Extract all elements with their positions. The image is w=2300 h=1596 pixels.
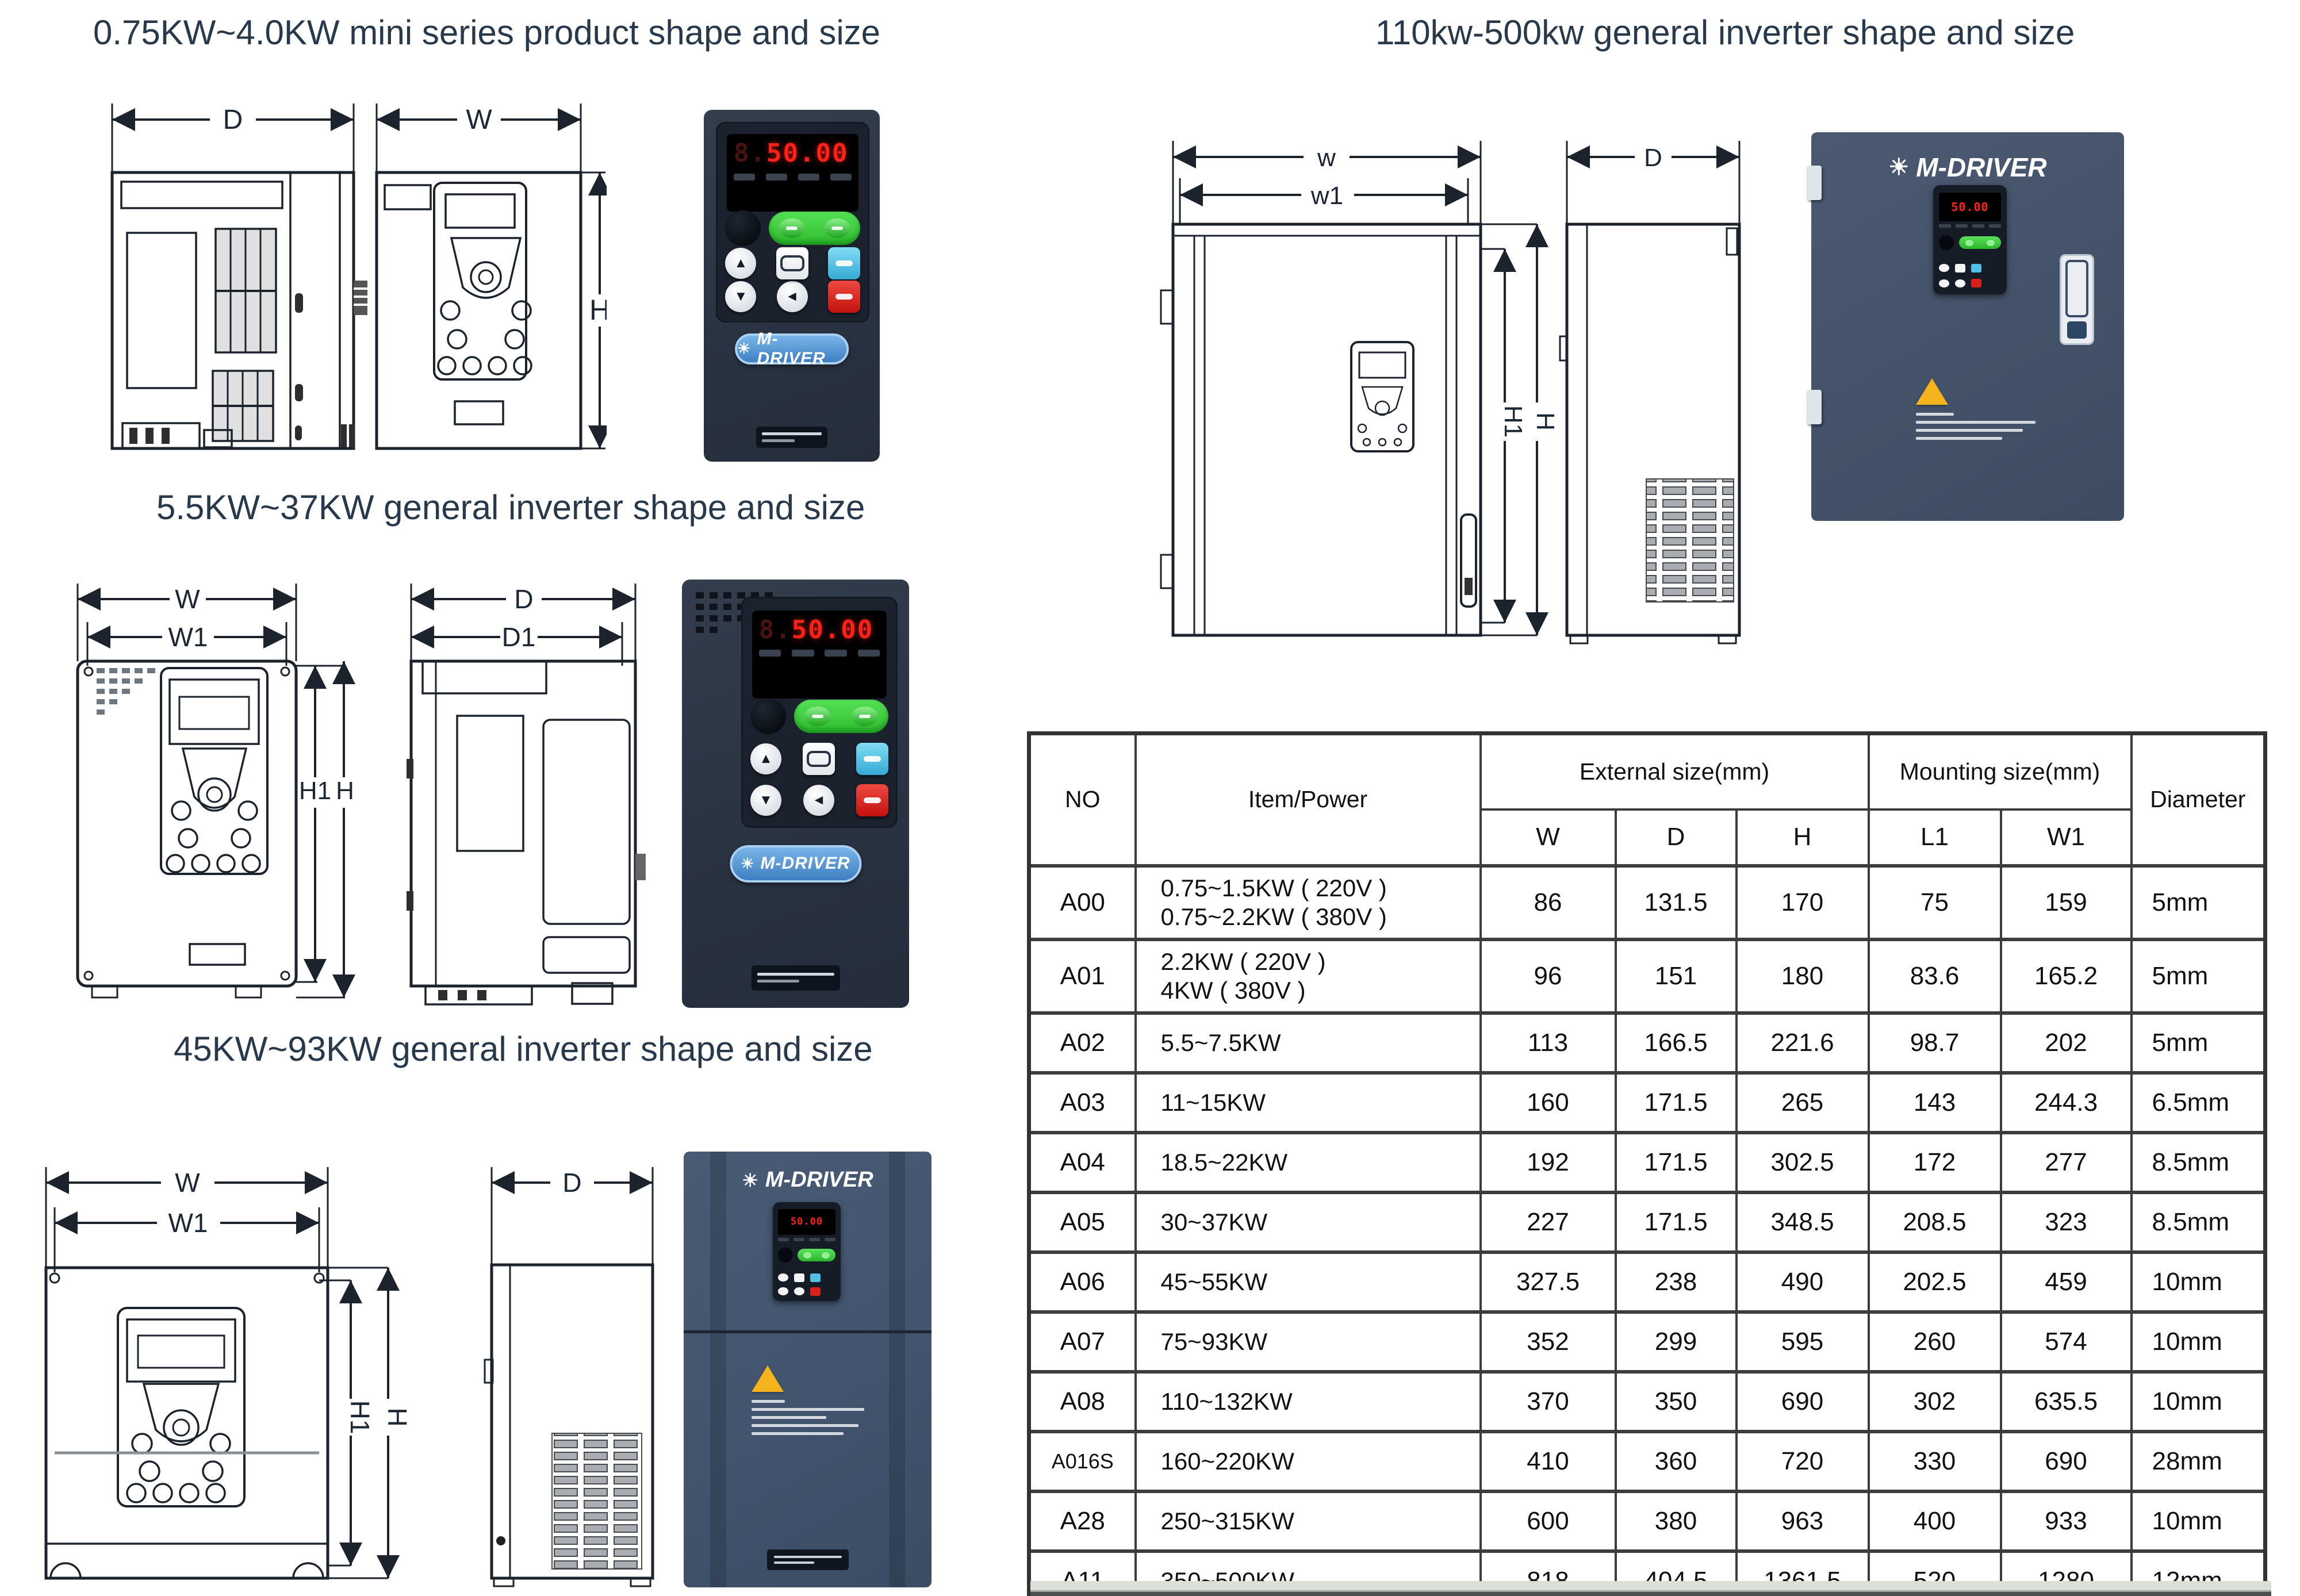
table-row: A016S160~220KW41036072033069028mm [1029,1432,2265,1491]
display-value: 50.00 [1951,200,1988,214]
table-cell: 8.5mm [2132,1133,2265,1192]
table-cell: 299 [1616,1312,1736,1372]
shift-button[interactable] [1971,264,1981,273]
brand-name: M-DRIVER [1916,152,2046,183]
table-cell: 238 [1616,1252,1736,1312]
brand-name: M-DRIVER [757,329,846,369]
table-cell: 180 [1736,939,1869,1013]
potentiometer-knob[interactable] [1939,235,1954,250]
dim-label-d: D [1644,144,1662,172]
product-photo-big-cabinet: ☀M-DRIVER 50.00 [1811,132,2124,521]
table-cell: 10mm [2132,1252,2265,1312]
keypad-outline [434,183,531,379]
table-cell: A00 [1029,866,1136,939]
table-cell: 244.3 [2001,1073,2132,1133]
table-cell: A08 [1029,1372,1136,1432]
table-cell: 635.5 [2001,1372,2132,1432]
up-button[interactable] [778,1273,788,1282]
vent-dots [97,668,155,715]
down-button[interactable]: ▼ [725,281,756,312]
table-cell: 227 [1481,1192,1616,1252]
col-header-h: H [1736,809,1869,866]
table-cell: 11~15KW [1136,1073,1481,1133]
stop-button[interactable] [810,1287,821,1296]
dim-label-d: D [223,105,243,135]
door-hinge [1807,166,1822,200]
enter-button[interactable] [1955,264,1965,273]
rating-label [767,1549,849,1570]
potentiometer-knob[interactable] [725,210,761,246]
display-ghost: 8. [759,615,792,644]
up-button[interactable] [1939,264,1949,272]
table-cell: 400 [1869,1491,2001,1551]
dim-label-d: D [562,1168,581,1198]
door-hinge [1807,390,1822,424]
stop-button[interactable] [1971,279,1981,287]
shift-button[interactable] [810,1273,821,1282]
keypad-panel: 8.50.00 ▲ ▼ ◄ [716,122,869,323]
dim-label-w: W [175,584,200,614]
up-arrow-icon: ▲ [734,255,747,271]
table-cell: 490 [1736,1252,1869,1312]
jog-button[interactable] [852,707,878,726]
table-cell: 5.5~7.5KW [1136,1013,1481,1073]
table-cell: 323 [2001,1192,2132,1252]
table-cell: 202 [2001,1013,2132,1073]
drawing-large-series: W W1 [14,1112,676,1590]
table-row: A08110~132KW370350690302635.510mm [1029,1372,2265,1432]
dim-label-w: W [466,105,492,135]
brand-name: M-DRIVER [765,1168,873,1192]
table-cell: A02 [1029,1013,1136,1073]
table-row: A0530~37KW227171.5348.5208.53238.5mm [1029,1192,2265,1252]
table-cell: 10mm [2132,1372,2265,1432]
table-cell: 327.5 [1481,1252,1616,1312]
table-cell: 75~93KW [1136,1312,1481,1372]
left-button[interactable]: ◄ [803,785,834,816]
down-arrow-icon: ▼ [759,792,773,808]
size-table-body: A000.75~1.5KW ( 220V )0.75~2.2KW ( 380V … [1029,866,2265,1596]
dim-label-h: H [1531,412,1559,431]
dim-label-h1: H1 [299,777,331,805]
keypad-outline [1351,342,1413,451]
table-cell: 96 [1481,939,1616,1013]
table-cell: A28 [1029,1491,1136,1551]
left-button[interactable] [1955,279,1965,287]
table-cell: 302 [1869,1372,2001,1432]
table-cell: A06 [1029,1252,1136,1312]
seven-segment-display: 8.50.00 [727,134,858,212]
dim-label-w1: w1 [1310,182,1343,210]
dim-label-w: W [175,1168,200,1198]
table-cell: A016S [1029,1432,1136,1491]
table-cell: A01 [1029,939,1136,1013]
table-cell: 171.5 [1616,1073,1736,1133]
keypad-outline [161,668,267,874]
product-photo-mid: 8.50.00 ▲ ▼ ◄ [682,580,909,1008]
panel-stripe [889,1152,905,1587]
run-button-group [794,700,888,733]
drawing-mid-series: W W1 [52,569,661,1009]
col-header-d: D [1616,809,1736,866]
rating-label [751,965,839,991]
table-cell: 265 [1736,1073,1869,1133]
table-cell: 380 [1616,1491,1736,1551]
warning-triangle-icon [1916,378,1948,405]
table-cell: 202.5 [1869,1252,2001,1312]
up-button[interactable]: ▲ [750,743,781,774]
status-indicators [734,174,852,181]
table-cell: 171.5 [1616,1192,1736,1252]
dim-label-h1: H1 [1499,405,1527,438]
dim-label-d: D [514,584,533,614]
table-cell: 75 [1869,866,2001,939]
table-cell: 113 [1481,1013,1616,1073]
dim-label-h1: H1 [345,1401,375,1434]
product-photo-large-cabinet: ☀M-DRIVER 50.00 [684,1152,931,1587]
table-cell: 172 [1869,1133,2001,1192]
panel-seam [684,1330,931,1333]
table-cell: 86 [1481,866,1616,939]
keypad-module: 50.00 [773,1202,841,1301]
shift-button[interactable] [856,743,888,775]
sun-icon: ☀ [741,855,754,873]
run-button[interactable] [779,218,805,238]
table-cell: 171.5 [1616,1133,1736,1192]
table-cell: 690 [2001,1432,2132,1491]
down-button[interactable] [1939,279,1949,287]
display-value: 50.00 [766,139,848,168]
table-row: A0311~15KW160171.5265143244.36.5mm [1029,1073,2265,1133]
dim-label-h: H [382,1407,412,1426]
brand-logo: ☀M-DRIVER [1888,152,2046,183]
table-cell: 160 [1481,1073,1616,1133]
table-row: A000.75~1.5KW ( 220V )0.75~2.2KW ( 380V … [1029,866,2265,939]
table-cell: 30~37KW [1136,1192,1481,1252]
table-cell: A07 [1029,1312,1136,1372]
up-button[interactable]: ▲ [725,248,756,279]
col-header-no: NO [1029,734,1136,866]
warning-block [1916,378,2035,445]
table-cell: 720 [1736,1432,1869,1491]
col-header-item-power: Item/Power [1136,734,1481,866]
col-header-external-size: External size(mm) [1481,734,1869,809]
col-header-diameter: Diameter [2132,734,2265,866]
left-button[interactable]: ◄ [777,281,808,312]
left-arrow-icon: ◄ [785,289,799,305]
table-cell: 143 [1869,1073,2001,1133]
table-cell: 2.2KW ( 220V )4KW ( 380V ) [1136,939,1481,1013]
title-mini-series: 0.75KW~4.0KW mini series product shape a… [93,13,880,52]
down-button[interactable]: ▼ [750,785,781,816]
table-cell: 18.5~22KW [1136,1133,1481,1192]
warning-triangle-icon [752,1365,784,1392]
table-row: A28250~315KW60038096340093310mm [1029,1491,2265,1551]
warning-text-lines [752,1400,864,1435]
table-cell: 45~55KW [1136,1252,1481,1312]
table-cell: 370 [1481,1372,1616,1432]
rating-label [756,427,827,448]
status-indicators [759,650,880,657]
seven-segment-display: 8.50.00 [752,611,887,699]
sun-icon: ☀ [742,1169,758,1191]
up-arrow-icon: ▲ [759,751,773,767]
table-cell: 330 [1869,1432,2001,1491]
title-big-series: 110kw-500kw general inverter shape and s… [1375,13,2075,52]
sun-icon: ☀ [1888,154,1909,181]
col-header-mounting-size: Mounting size(mm) [1869,734,2132,809]
table-cell: 690 [1736,1372,1869,1432]
table-cell: 10mm [2132,1491,2265,1551]
table-cell: 0.75~1.5KW ( 220V )0.75~2.2KW ( 380V ) [1136,866,1481,939]
table-cell: 574 [2001,1312,2132,1372]
jog-button[interactable] [824,218,850,238]
table-cell: 160~220KW [1136,1432,1481,1491]
down-arrow-icon: ▼ [734,289,747,305]
sun-icon: ☀ [737,340,751,358]
warning-text-lines [1916,413,2035,440]
warning-block [752,1365,864,1440]
table-cell: 159 [2001,866,2132,939]
table-cell: 933 [2001,1491,2132,1551]
stop-button[interactable] [828,281,860,313]
shift-button[interactable] [828,247,860,279]
size-table: NO Item/Power External size(mm) Mounting… [1027,731,2267,1596]
table-cell: 221.6 [1736,1013,1869,1073]
bottom-divider-bar [1030,1581,2271,1596]
display-value: 50.00 [791,1216,823,1227]
table-cell: 600 [1481,1491,1616,1551]
dim-label-d1: D1 [502,622,536,652]
table-cell: A05 [1029,1192,1136,1252]
table-cell: 165.2 [2001,939,2132,1013]
vent-grille [1646,479,1734,602]
table-cell: 166.5 [1616,1013,1736,1073]
table-cell: 352 [1481,1312,1616,1372]
table-cell: 110~132KW [1136,1372,1481,1432]
table-cell: 6.5mm [2132,1073,2265,1133]
stop-button[interactable] [856,784,888,816]
keypad-panel: 8.50.00 ▲ ▼ ◄ [741,597,898,828]
left-arrow-icon: ◄ [812,792,826,808]
vent-grille [213,229,276,441]
table-cell: 963 [1736,1491,1869,1551]
title-mid-series: 5.5KW~37KW general inverter shape and si… [156,488,865,527]
potentiometer-knob[interactable] [778,1248,793,1263]
table-cell: A03 [1029,1073,1136,1133]
keypad-outline [118,1308,244,1506]
dim-label-w1: W1 [168,622,208,652]
keypad-module: 50.00 [1933,185,2007,294]
run-button[interactable] [804,707,831,726]
door-handle[interactable] [2060,254,2094,345]
table-cell: 131.5 [1616,866,1736,939]
brand-badge: ☀M-DRIVER [730,845,861,883]
table-cell: 459 [2001,1252,2132,1312]
table-cell: 83.6 [1869,939,2001,1013]
table-row: A0645~55KW327.5238490202.545910mm [1029,1252,2265,1312]
table-row: A012.2KW ( 220V )4KW ( 380V )9615118083.… [1029,939,2265,1013]
vent-grille [552,1433,642,1569]
table-cell: 28mm [2132,1432,2265,1491]
potentiometer-knob[interactable] [750,699,786,734]
panel-stripe [710,1152,726,1587]
enter-button[interactable] [776,247,808,279]
table-cell: 348.5 [1736,1192,1869,1252]
table-cell: 360 [1616,1432,1736,1491]
table-cell: 10mm [2132,1312,2265,1372]
table-cell: 5mm [2132,866,2265,939]
table-cell: 260 [1869,1312,2001,1372]
brand-name: M-DRIVER [760,854,850,873]
table-cell: 208.5 [1869,1192,2001,1252]
table-row: A0775~93KW35229959526057410mm [1029,1312,2265,1372]
enter-button[interactable] [803,743,835,775]
table-cell: A04 [1029,1133,1136,1192]
brand-logo: ☀M-DRIVER [742,1168,873,1192]
product-photo-mini: 8.50.00 ▲ ▼ ◄ [704,110,880,462]
table-cell: 595 [1736,1312,1869,1372]
table-cell: 170 [1736,866,1869,939]
table-cell: 410 [1481,1432,1616,1491]
left-button[interactable] [794,1287,804,1295]
table-row: A025.5~7.5KW113166.5221.698.72025mm [1029,1013,2265,1073]
table-cell: 250~315KW [1136,1491,1481,1551]
down-button[interactable] [778,1287,788,1295]
brand-badge: ☀M-DRIVER [735,333,849,365]
col-header-w1: W1 [2001,809,2132,866]
run-button-group[interactable] [1959,236,2001,249]
table-cell: 5mm [2132,939,2265,1013]
table-cell: 98.7 [1869,1013,2001,1073]
table-cell: 8.5mm [2132,1192,2265,1252]
dim-label-h: H [589,294,607,326]
dim-label-h: H [336,777,354,805]
drawing-big-series: w w1 H1 [1153,118,1774,670]
title-large-series: 45KW~93KW general inverter shape and siz… [174,1029,873,1069]
display-value: 50.00 [792,615,873,644]
enter-button[interactable] [794,1273,804,1282]
col-header-l1: L1 [1869,809,2001,866]
spec-sheet-page: 0.75KW~4.0KW mini series product shape a… [0,0,2300,1596]
table-cell: 302.5 [1736,1133,1869,1192]
col-header-w: W [1481,809,1616,866]
run-button-group[interactable] [798,1249,835,1261]
table-cell: 350 [1616,1372,1736,1432]
table-cell: 151 [1616,939,1736,1013]
dim-label-w: w [1317,144,1336,172]
table-row: A0418.5~22KW192171.5302.51722778.5mm [1029,1133,2265,1192]
dim-label-w1: W1 [168,1208,208,1238]
table-cell: 277 [2001,1133,2132,1192]
drawing-mini-series: D [89,86,607,477]
run-button-group [769,212,860,245]
table-cell: 192 [1481,1133,1616,1192]
table-cell: 5mm [2132,1013,2265,1073]
display-ghost: 8. [734,139,766,168]
